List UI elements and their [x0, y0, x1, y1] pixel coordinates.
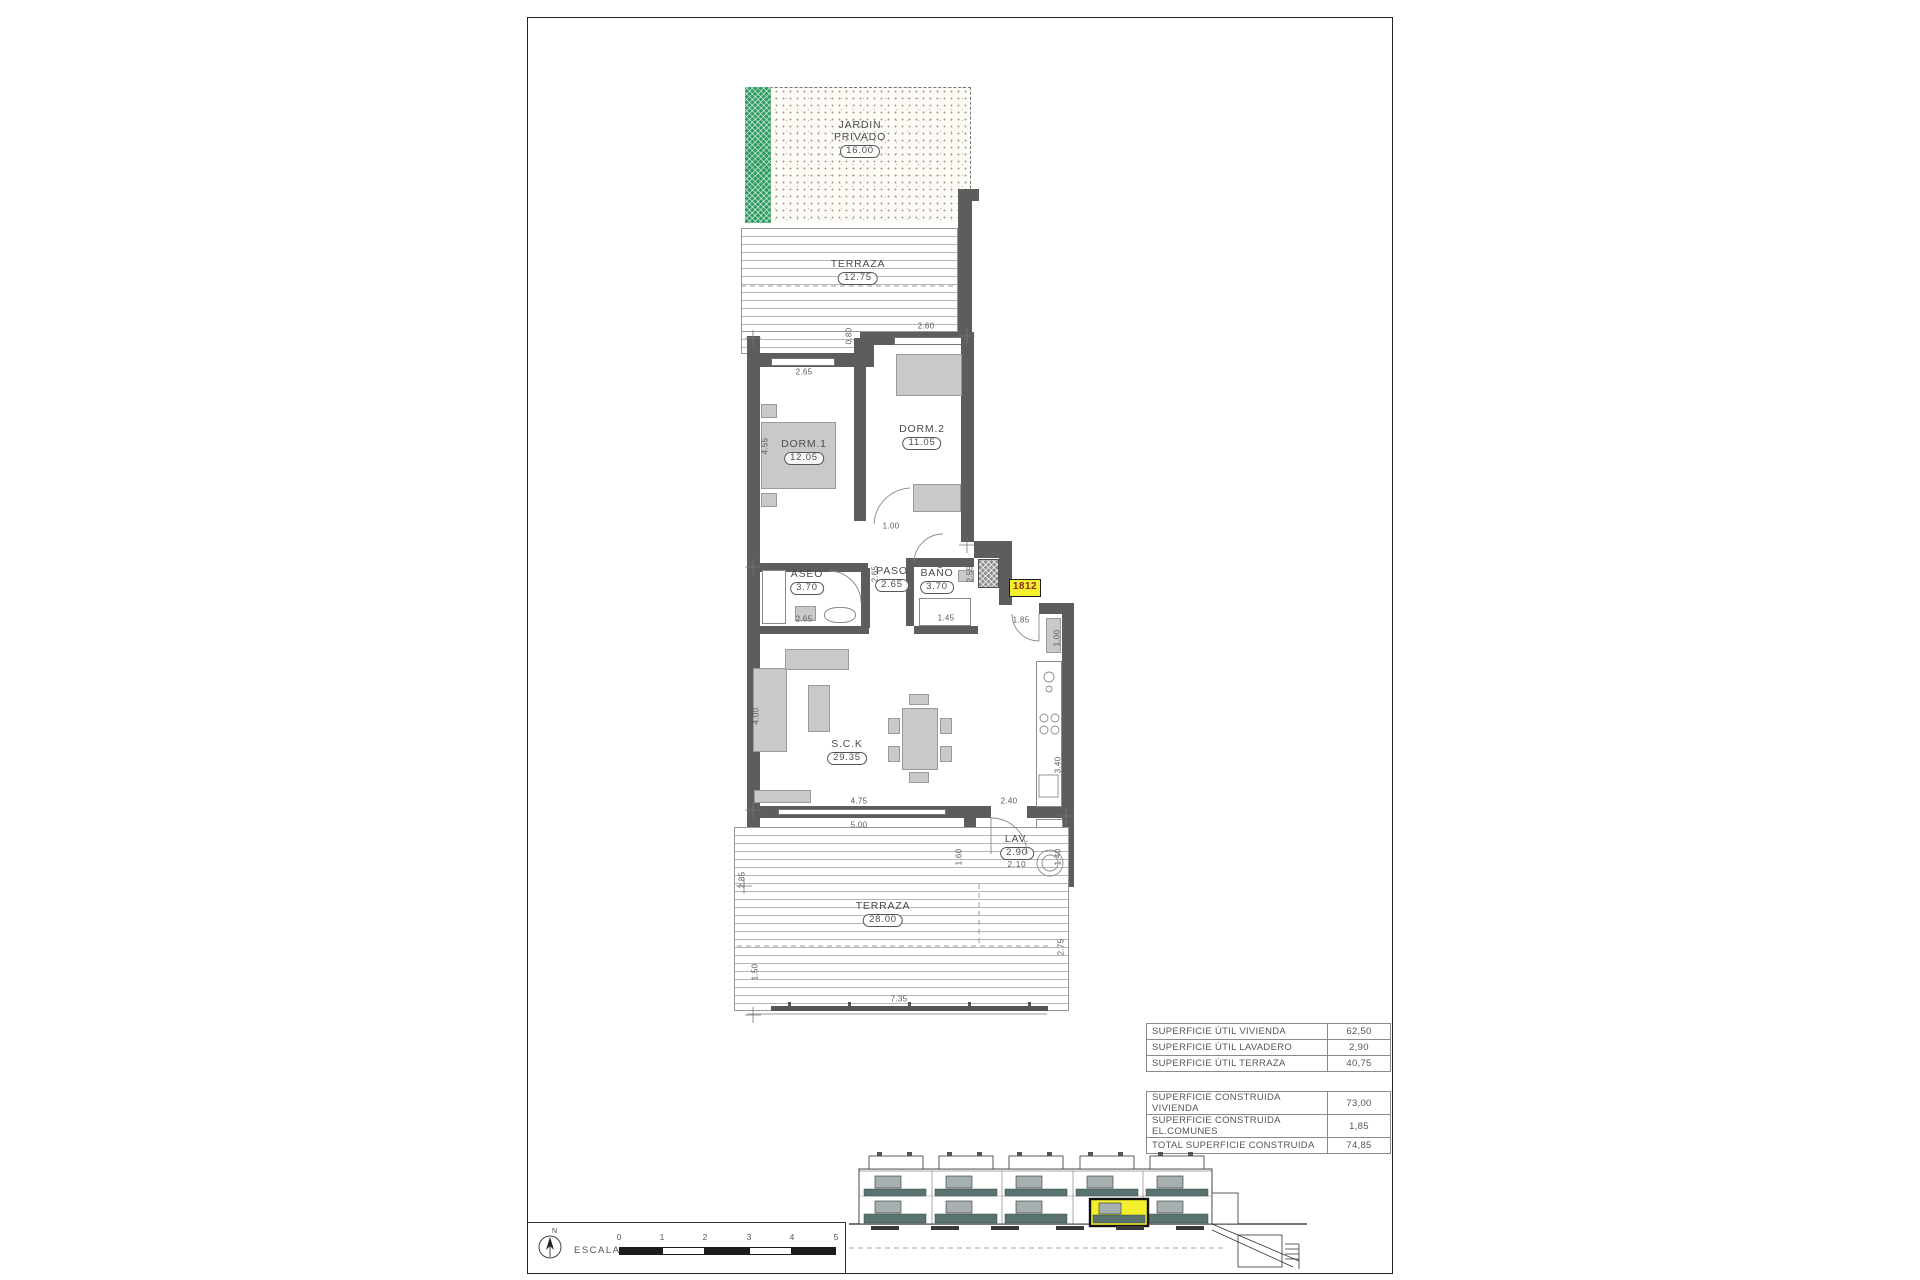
dorm2-area: 11.05 — [902, 437, 941, 450]
room-label-terraza-bottom: TERRAZA 28.00 — [856, 900, 911, 927]
furniture-wardrobe — [913, 484, 961, 512]
furniture-dining-table — [902, 708, 938, 770]
furniture-chair — [909, 694, 929, 705]
table-cell-label: SUPERFICIE CONSTRUIDA VIVIENDA — [1147, 1092, 1328, 1115]
garden-area-value: 16.00 — [840, 145, 880, 158]
dim-label: 2.20 — [961, 258, 970, 275]
dim-label: 1.00 — [883, 522, 900, 531]
dim-label: 1.00 — [1053, 630, 1062, 647]
table-cell-label: SUPERFICIE ÚTIL VIVIENDA — [1147, 1024, 1328, 1040]
paso-name: PASO — [875, 565, 909, 577]
drawing-page: JARDIN PRIVADO 16.00 TERRAZA 12.75 1812 — [0, 0, 1920, 1280]
table-cell-value: 40,75 — [1328, 1056, 1391, 1072]
dim-label: 2.65 — [796, 615, 813, 624]
room-label-bano: BAÑO 3.70 — [920, 567, 954, 594]
plan-sheet: JARDIN PRIVADO 16.00 TERRAZA 12.75 1812 — [527, 17, 1393, 1274]
north-arrow-icon — [536, 1233, 564, 1261]
furniture-chair — [888, 718, 900, 734]
scale-tick: 1 — [660, 1232, 665, 1242]
furniture-nightstand — [761, 493, 777, 507]
sliding-door-window — [778, 809, 946, 815]
dim-label: 1.60 — [955, 849, 964, 866]
wall — [747, 336, 760, 827]
dim-label: 2.65 — [796, 368, 813, 377]
lav-width-dim: 2.10 — [1000, 860, 1034, 869]
furniture-chair — [888, 746, 900, 762]
table-cell-label: SUPERFICIE ÚTIL TERRAZA — [1147, 1056, 1328, 1072]
dim-label: 4.55 — [761, 438, 770, 455]
room-label-garden: JARDIN PRIVADO 16.00 — [834, 119, 886, 158]
furniture-sofa — [785, 649, 849, 670]
wall — [747, 626, 869, 634]
scale-segment — [749, 1247, 792, 1255]
bano-name: BAÑO — [920, 567, 954, 579]
kitchen-counter — [1036, 661, 1062, 807]
scale-tick: 0 — [617, 1232, 622, 1242]
table-cell-value: 73,00 — [1328, 1092, 1391, 1115]
dim-label: 2.85 — [738, 872, 747, 889]
furniture-bed-dorm2 — [896, 354, 962, 396]
dim-label: 5.00 — [851, 821, 868, 830]
window — [771, 358, 835, 366]
furniture-nightstand — [761, 404, 777, 418]
dim-label: 4.75 — [851, 797, 868, 806]
table-cell-value: 2,90 — [1328, 1040, 1391, 1056]
terraza-top-name: TERRAZA — [831, 258, 886, 270]
furniture-coffee-table — [808, 685, 830, 732]
room-label-paso: PASO 2.65 — [875, 565, 909, 592]
dim-label: 1.40 — [1054, 849, 1063, 866]
scale-segment — [662, 1247, 705, 1255]
wall — [914, 626, 978, 634]
room-label-dorm2: DORM.2 11.05 — [899, 423, 945, 450]
scale-box: N ESCALA : 0 1 2 3 4 5 — [528, 1222, 846, 1273]
building-elevation — [841, 1149, 1331, 1273]
aseo-name: ASEO — [790, 568, 824, 580]
unit-number-tag: 1812 — [1009, 579, 1041, 597]
room-label-lavadero: LAV. 2.90 2.10 — [1000, 833, 1034, 869]
wall — [854, 338, 866, 521]
room-label-dorm1: DORM.1 12.05 — [781, 438, 827, 465]
bano-area: 3.70 — [920, 581, 954, 594]
table-cell-value: 62,50 — [1328, 1024, 1391, 1040]
terraza-bottom-name: TERRAZA — [856, 900, 911, 912]
terraza-top-area: 12.75 — [838, 272, 878, 285]
dim-label: 1.45 — [938, 614, 955, 623]
garden-label-line1: JARDIN — [834, 119, 886, 131]
table-cell-value: 1,85 — [1328, 1115, 1391, 1138]
scale-segment — [619, 1247, 662, 1255]
sck-name: S.C.K — [827, 738, 867, 750]
terrace-railing — [771, 1006, 1048, 1011]
terraza-bottom-area: 28.00 — [863, 914, 903, 927]
furniture-chair — [940, 746, 952, 762]
table-cell-label: SUPERFICIE CONSTRUIDA EL.COMUNES — [1147, 1115, 1328, 1138]
furniture-sideboard — [754, 790, 811, 803]
table-row: SUPERFICIE CONSTRUIDA VIVIENDA 73,00 — [1147, 1092, 1391, 1115]
dorm1-name: DORM.1 — [781, 438, 827, 450]
dim-label: 1.85 — [1013, 616, 1030, 625]
paso-area: 2.65 — [875, 579, 909, 592]
room-label-aseo: ASEO 3.70 — [790, 568, 824, 595]
table-row: SUPERFICIE ÚTIL LAVADERO 2,90 — [1147, 1040, 1391, 1056]
dim-label: 1.40 — [751, 588, 760, 605]
sck-area: 29.35 — [827, 752, 867, 765]
installation-shaft — [978, 559, 999, 588]
dim-label: 2.75 — [1057, 939, 1066, 956]
aseo-area: 3.70 — [790, 582, 824, 595]
dim-label: 3.40 — [1054, 757, 1063, 774]
window — [894, 337, 966, 345]
scale-tick: 2 — [703, 1232, 708, 1242]
scale-segment — [792, 1247, 836, 1255]
table-superficies-construidas: SUPERFICIE CONSTRUIDA VIVIENDA 73,00 SUP… — [1146, 1091, 1391, 1154]
dim-label: 1.50 — [751, 964, 760, 981]
wall — [908, 558, 974, 567]
lav-area: 2.90 — [1000, 847, 1034, 860]
table-cell-value: 74,85 — [1328, 1138, 1391, 1154]
room-label-terraza-top: TERRAZA 12.75 — [831, 258, 886, 285]
scale-tick: 5 — [834, 1232, 839, 1242]
table-row: SUPERFICIE ÚTIL VIVIENDA 62,50 — [1147, 1024, 1391, 1040]
wall — [958, 189, 979, 201]
bathtub — [762, 570, 786, 624]
table-superficies-utiles: SUPERFICIE ÚTIL VIVIENDA 62,50 SUPERFICI… — [1146, 1023, 1391, 1072]
table-cell-label: SUPERFICIE ÚTIL LAVADERO — [1147, 1040, 1328, 1056]
furniture-chair — [940, 718, 952, 734]
garden-label-line2: PRIVADO — [834, 131, 886, 143]
lav-name: LAV. — [1000, 833, 1034, 845]
dim-label: 2.60 — [918, 322, 935, 331]
toilet — [824, 607, 856, 623]
scale-tick: 3 — [747, 1232, 752, 1242]
garden-hedge-band — [745, 87, 771, 223]
dim-label: 0.80 — [845, 328, 854, 345]
wall — [961, 332, 974, 542]
table-row: SUPERFICIE CONSTRUIDA EL.COMUNES 1,85 — [1147, 1115, 1391, 1138]
dim-label: 4.00 — [752, 708, 761, 725]
wall — [1062, 603, 1074, 815]
dim-label: 2.65 — [871, 566, 880, 583]
table-row: SUPERFICIE ÚTIL TERRAZA 40,75 — [1147, 1056, 1391, 1072]
dim-label: 4.25 — [967, 400, 976, 417]
wall — [977, 806, 991, 818]
room-label-sck: S.C.K 29.35 — [827, 738, 867, 765]
dorm2-name: DORM.2 — [899, 423, 945, 435]
scale-segment — [705, 1247, 749, 1255]
dorm1-area: 12.05 — [784, 452, 824, 465]
wall — [861, 568, 870, 628]
furniture-chair — [909, 772, 929, 783]
dim-label: 2.55 — [966, 566, 975, 583]
scale-tick: 4 — [790, 1232, 795, 1242]
dim-label: 2.40 — [1001, 797, 1018, 806]
dim-label: 7.35 — [891, 995, 908, 1004]
